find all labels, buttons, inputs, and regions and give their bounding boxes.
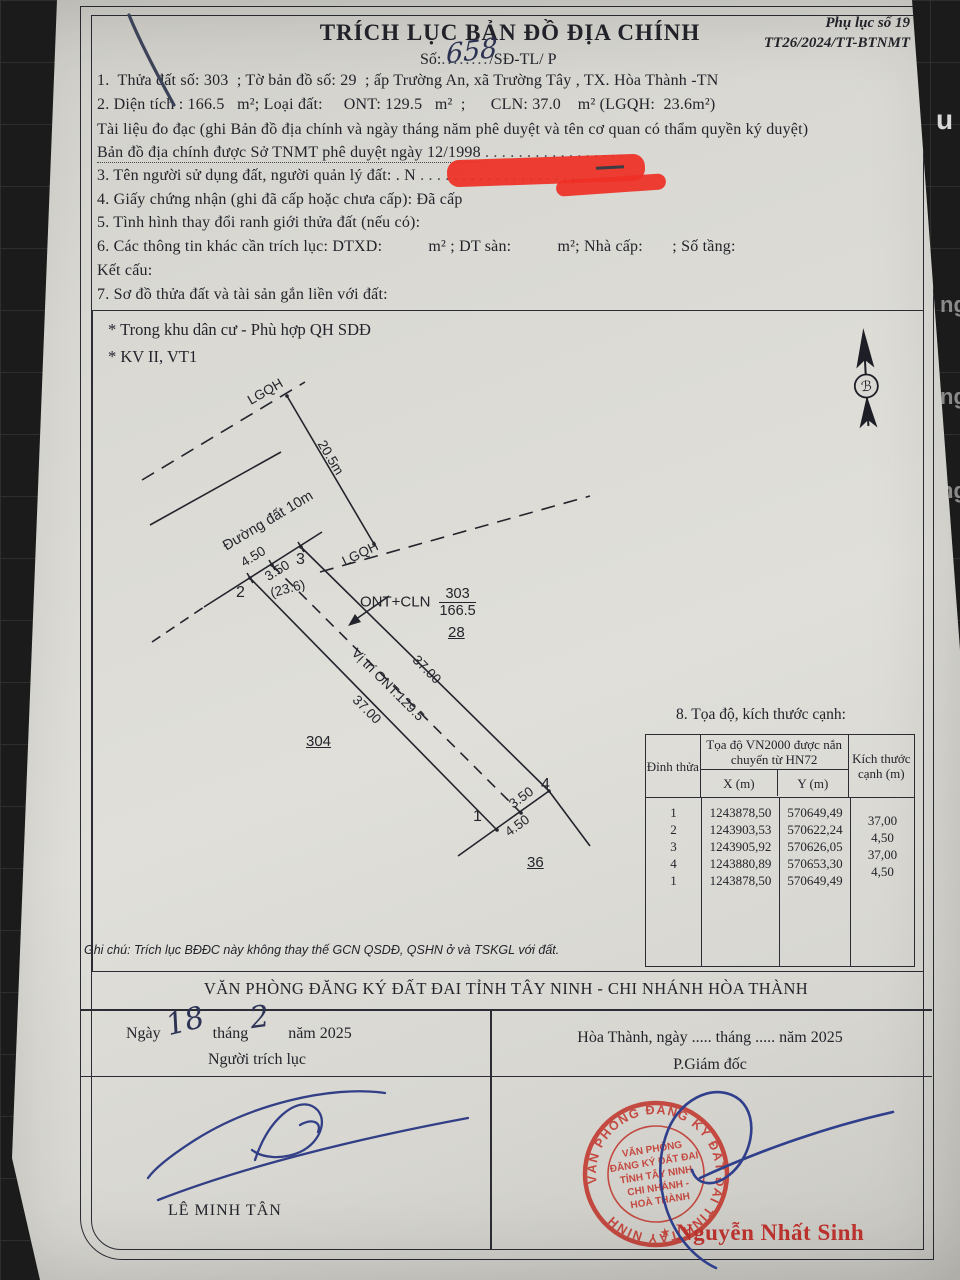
table-cell: 1 — [646, 873, 701, 890]
left-date-line: Ngày tháng năm 2025 — [126, 1025, 352, 1043]
table-cell: 4,50 — [851, 864, 914, 881]
size-column: 37,00 4,50 37,00 4,50 — [851, 798, 914, 966]
approval-text: Bản đồ địa chính được Sở TNMT phê duyệt … — [97, 144, 481, 163]
photo-of-cadastral-extract: u ng ng ng Phụ lục số 19 TT26/2024/TT-BT… — [0, 0, 960, 1280]
table-cell: 570622,24 — [780, 822, 850, 839]
footnote: Ghi chú: Trích lục BĐĐC này không thay t… — [84, 943, 559, 957]
document-page: Phụ lục số 19 TT26/2024/TT-BTNMT TRÍCH L… — [0, 0, 960, 1280]
table-cell: 4 — [646, 856, 701, 873]
item-6-other-info: 6. Các thông tin khác cần trích lục: DTX… — [97, 236, 927, 258]
coordinates-table: Đỉnh thửa Tọa độ VN2000 được nắn chuyển … — [645, 734, 915, 967]
right-signer-role: P.Giám đốc — [500, 1056, 920, 1074]
left-signer-name: LÊ MINH TÂN — [168, 1202, 282, 1220]
col-header-size: Kích thước cạnh (m) — [849, 735, 914, 797]
table-cell: 1243903,53 — [702, 822, 779, 839]
parcel-number: 303 — [439, 586, 475, 603]
left-signer-role: Người trích lục — [92, 1051, 422, 1069]
item-7-sketch: 7. Sơ đồ thửa đất và tài sản gắn liền vớ… — [97, 284, 927, 306]
table-cell: 1243878,50 — [702, 873, 779, 890]
table-cell: 1 — [646, 805, 701, 822]
owner-label: 3. Tên người sử dụng đất, người quản lý … — [97, 167, 416, 184]
label-adjacent-28: 28 — [448, 624, 465, 641]
item-4-certificate: 4. Giấy chứng nhận (ghi đã cấp hoặc chưa… — [97, 189, 927, 211]
section8-title: 8. Tọa độ, kích thước cạnh: — [676, 706, 846, 724]
item-2-measure-note: Tài liệu đo đạc (ghi Bản đồ địa chính và… — [97, 119, 927, 141]
col-header-x: X (m) — [701, 770, 778, 796]
zoning-note-2: * KV II, VT1 — [108, 347, 197, 367]
table-cell: 4,50 — [851, 830, 914, 847]
background-letter: ng — [940, 292, 960, 318]
zoning-note-1: * Trong khu dân cư - Phù hợp QH SDĐ — [108, 320, 371, 340]
col-header-vertex: Đỉnh thửa — [646, 735, 701, 797]
item-1-parcel: 1. Thửa đất số: 303 ; Tờ bản đồ số: 29 ;… — [97, 70, 927, 92]
table-cell: 2 — [646, 822, 701, 839]
stamp-star-icon: ★ — [659, 1225, 672, 1241]
date-word-month: tháng — [213, 1025, 249, 1042]
table-cell: 570653,30 — [780, 856, 850, 873]
x-column: 1243878,50 1243903,53 1243905,92 1243880… — [702, 798, 780, 966]
table-cell: 1243878,50 — [702, 805, 779, 822]
label-vertex-4: 4 — [541, 776, 550, 794]
label-land-use: ONT+CLN303166.5 — [360, 586, 476, 619]
label-vertex-1: 1 — [473, 808, 482, 826]
handwritten-doc-number: 658 — [446, 33, 498, 71]
col-header-coord: Tọa độ VN2000 được nắn chuyển từ HN72 — [701, 735, 848, 770]
item-2-area: 2. Diện tích : 166.5 m²; Loại đất: ONT: … — [97, 94, 927, 116]
parcel-area: 166.5 — [439, 603, 475, 619]
doc-number-prefix: Số: — [420, 51, 441, 68]
table-cell: 37,00 — [851, 847, 914, 864]
right-date-line: Hòa Thành, ngày ..... tháng ..... năm 20… — [500, 1029, 920, 1047]
table-cell: 570649,49 — [780, 873, 850, 890]
y-column: 570649,49 570622,24 570626,05 570653,30 … — [780, 798, 851, 966]
table-cell: 570626,05 — [780, 839, 850, 856]
label-adjacent-304: 304 — [306, 733, 331, 750]
divider-line — [80, 1009, 932, 1011]
date-word-year: năm 2025 — [288, 1025, 352, 1042]
item-5-boundary-change: 5. Tình hình thay đổi ranh giới thửa đất… — [97, 212, 927, 234]
date-word-day: Ngày — [126, 1025, 161, 1042]
background-letter: u — [936, 104, 953, 136]
item-6-structure: Kết cấu: — [97, 260, 927, 282]
table-cell: 1243880,89 — [702, 856, 779, 873]
ont-cln-text: ONT+CLN — [360, 593, 430, 610]
table-cell: 37,00 — [851, 813, 914, 830]
label-vertex-3: 3 — [296, 551, 305, 569]
table-cell: 1243905,92 — [702, 839, 779, 856]
table-cell: 3 — [646, 839, 701, 856]
col-header-y: Y (m) — [778, 770, 848, 796]
office-name: VĂN PHÒNG ĐĂNG KÝ ĐẤT ĐAI TỈNH TÂY NINH … — [80, 979, 932, 999]
background-letter: ng — [940, 384, 960, 410]
divider-line — [80, 1076, 932, 1077]
page-title: TRÍCH LỤC BẢN ĐỒ ĐỊA CHÍNH — [260, 20, 760, 46]
table-cell: 570649,49 — [780, 805, 850, 822]
divider-line — [490, 1009, 492, 1249]
label-vertex-2: 2 — [236, 584, 245, 602]
label-adjacent-36: 36 — [527, 854, 544, 871]
vertex-column: 1 2 3 4 1 — [646, 798, 702, 966]
right-signer-name: Nguyễn Nhất Sinh — [676, 1220, 864, 1246]
doc-number-suffix: /SĐ-TL/ P — [489, 51, 556, 68]
